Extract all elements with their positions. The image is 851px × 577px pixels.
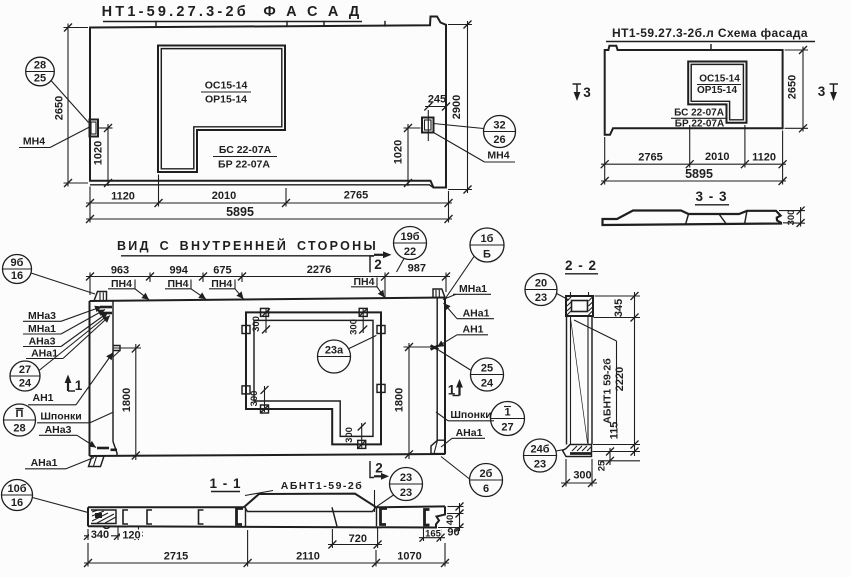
svg-text:БР 22-07А: БР 22-07А (675, 119, 724, 130)
svg-text:ПН4: ПН4 (211, 278, 232, 290)
svg-text:МН4: МН4 (487, 150, 509, 162)
svg-text:2: 2 (375, 461, 384, 476)
svg-text:25: 25 (34, 72, 46, 84)
svg-text:40: 40 (445, 515, 456, 526)
svg-text:БС 22-07А: БС 22-07А (219, 144, 272, 156)
svg-text:МНа3: МНа3 (28, 310, 56, 322)
svg-text:27: 27 (19, 364, 31, 376)
svg-text:2765: 2765 (344, 190, 368, 202)
svg-text:23а: 23а (325, 345, 344, 357)
svg-text:26: 26 (493, 134, 505, 146)
svg-text:24б: 24б (530, 444, 549, 456)
svg-text:2: 2 (374, 257, 383, 272)
svg-text:300: 300 (249, 391, 260, 407)
svg-text:ОР15-14: ОР15-14 (205, 94, 247, 106)
svg-text:1: 1 (75, 378, 84, 393)
svg-text:Шпонки: Шпонки (450, 409, 491, 421)
svg-text:2276: 2276 (307, 264, 331, 276)
svg-text:28: 28 (13, 423, 25, 435)
svg-text:2б: 2б (480, 468, 493, 480)
svg-text:340: 340 (91, 529, 109, 541)
svg-text:АНа1: АНа1 (456, 427, 483, 439)
svg-text:1070: 1070 (397, 551, 421, 563)
svg-text:2110: 2110 (296, 551, 320, 563)
svg-text:16: 16 (11, 497, 23, 509)
svg-text:19б: 19б (400, 231, 419, 243)
svg-text:БР 22-07А: БР 22-07А (218, 159, 270, 171)
svg-text:ОР15-14: ОР15-14 (697, 85, 737, 96)
svg-text:АНа3: АНа3 (45, 424, 72, 436)
svg-text:2650: 2650 (54, 96, 66, 120)
svg-text:Шпонки: Шпонки (40, 411, 81, 423)
svg-text:27: 27 (501, 422, 513, 434)
svg-text:22: 22 (404, 246, 416, 258)
svg-text:300: 300 (786, 210, 797, 226)
svg-text:АБНТ1 59-2б: АБНТ1 59-2б (602, 358, 614, 424)
svg-text:300: 300 (573, 470, 591, 482)
svg-text:23: 23 (535, 292, 547, 304)
svg-text:23: 23 (400, 472, 412, 484)
svg-text:2900: 2900 (451, 95, 463, 119)
svg-text:987: 987 (408, 263, 426, 275)
svg-text:Б: Б (483, 249, 491, 261)
svg-text:2220: 2220 (614, 367, 626, 391)
svg-text:28: 28 (34, 60, 46, 72)
svg-text:165: 165 (425, 528, 442, 539)
svg-text:25: 25 (481, 363, 493, 375)
svg-text:АНа3: АНа3 (29, 335, 56, 347)
svg-text:90: 90 (447, 527, 459, 539)
svg-text:120: 120 (122, 530, 140, 542)
svg-text:1020: 1020 (393, 140, 405, 164)
svg-text:МН4: МН4 (23, 136, 45, 148)
svg-text:МНа1: МНа1 (28, 323, 56, 335)
svg-text:1120: 1120 (752, 152, 776, 164)
svg-text:300: 300 (349, 319, 360, 335)
svg-text:963: 963 (111, 265, 129, 277)
svg-text:2765: 2765 (638, 152, 662, 164)
svg-text:1120: 1120 (111, 191, 135, 203)
svg-text:ПН4: ПН4 (354, 276, 375, 288)
svg-text:23: 23 (534, 459, 546, 471)
svg-text:МНа1: МНа1 (459, 283, 487, 295)
svg-text:6: 6 (483, 483, 489, 495)
svg-text:5895: 5895 (226, 205, 254, 219)
svg-text:32: 32 (493, 120, 505, 132)
svg-text:ОС15-14: ОС15-14 (205, 80, 248, 92)
svg-text:БС 22-07А: БС 22-07А (674, 108, 724, 119)
svg-text:23: 23 (400, 487, 412, 499)
svg-text:АНа1: АНа1 (463, 308, 490, 320)
svg-text:АБНТ1-59-2б: АБНТ1-59-2б (281, 480, 363, 492)
svg-text:345: 345 (613, 299, 625, 317)
svg-text:16: 16 (11, 270, 23, 282)
svg-text:1020: 1020 (93, 141, 105, 165)
svg-text:1б: 1б (481, 233, 494, 245)
svg-text:1: 1 (504, 407, 510, 419)
svg-text:5895: 5895 (685, 167, 713, 181)
svg-text:1800: 1800 (394, 388, 406, 412)
svg-text:АНа1: АНа1 (31, 347, 58, 359)
svg-text:2010: 2010 (212, 190, 236, 202)
svg-text:10б: 10б (7, 483, 26, 495)
svg-text:300: 300 (251, 316, 262, 332)
svg-text:245: 245 (428, 94, 446, 106)
svg-text:П: П (16, 408, 24, 420)
svg-text:3: 3 (818, 84, 827, 99)
svg-text:НТ1-59.27.3-2б.л Схема фасада: НТ1-59.27.3-2б.л Схема фасада (612, 26, 808, 40)
svg-text:2010: 2010 (705, 151, 729, 163)
svg-text:2 - 2: 2 - 2 (565, 258, 597, 273)
svg-text:9б: 9б (11, 257, 24, 269)
svg-text:24: 24 (481, 378, 494, 390)
svg-text:ОС15-14: ОС15-14 (699, 74, 740, 85)
svg-text:АН1: АН1 (462, 324, 483, 336)
svg-text:300: 300 (344, 427, 355, 443)
svg-text:ВИД С ВНУТРЕННЕЙ СТОРОНЫ: ВИД С ВНУТРЕННЕЙ СТОРОНЫ (117, 238, 378, 253)
svg-text:675: 675 (213, 265, 231, 277)
svg-text:3: 3 (583, 85, 592, 100)
svg-text:ПН4: ПН4 (168, 278, 189, 290)
svg-text:1800: 1800 (121, 388, 133, 412)
svg-text:994: 994 (170, 265, 189, 277)
svg-text:720: 720 (349, 533, 367, 545)
svg-text:24: 24 (19, 378, 32, 390)
svg-text:АНа1: АНа1 (31, 457, 58, 469)
svg-text:2650: 2650 (787, 75, 799, 99)
svg-text:2715: 2715 (164, 551, 188, 563)
svg-text:1 - 1: 1 - 1 (209, 476, 241, 491)
svg-text:АН1: АН1 (32, 392, 53, 404)
svg-text:3 - 3: 3 - 3 (695, 189, 727, 204)
svg-text:25: 25 (597, 460, 608, 471)
svg-text:ПН4: ПН4 (111, 278, 132, 290)
svg-text:20: 20 (535, 278, 547, 290)
svg-text:НТ1-59.27.3-2б Ф А С А Д: НТ1-59.27.3-2б Ф А С А Д (102, 4, 363, 20)
